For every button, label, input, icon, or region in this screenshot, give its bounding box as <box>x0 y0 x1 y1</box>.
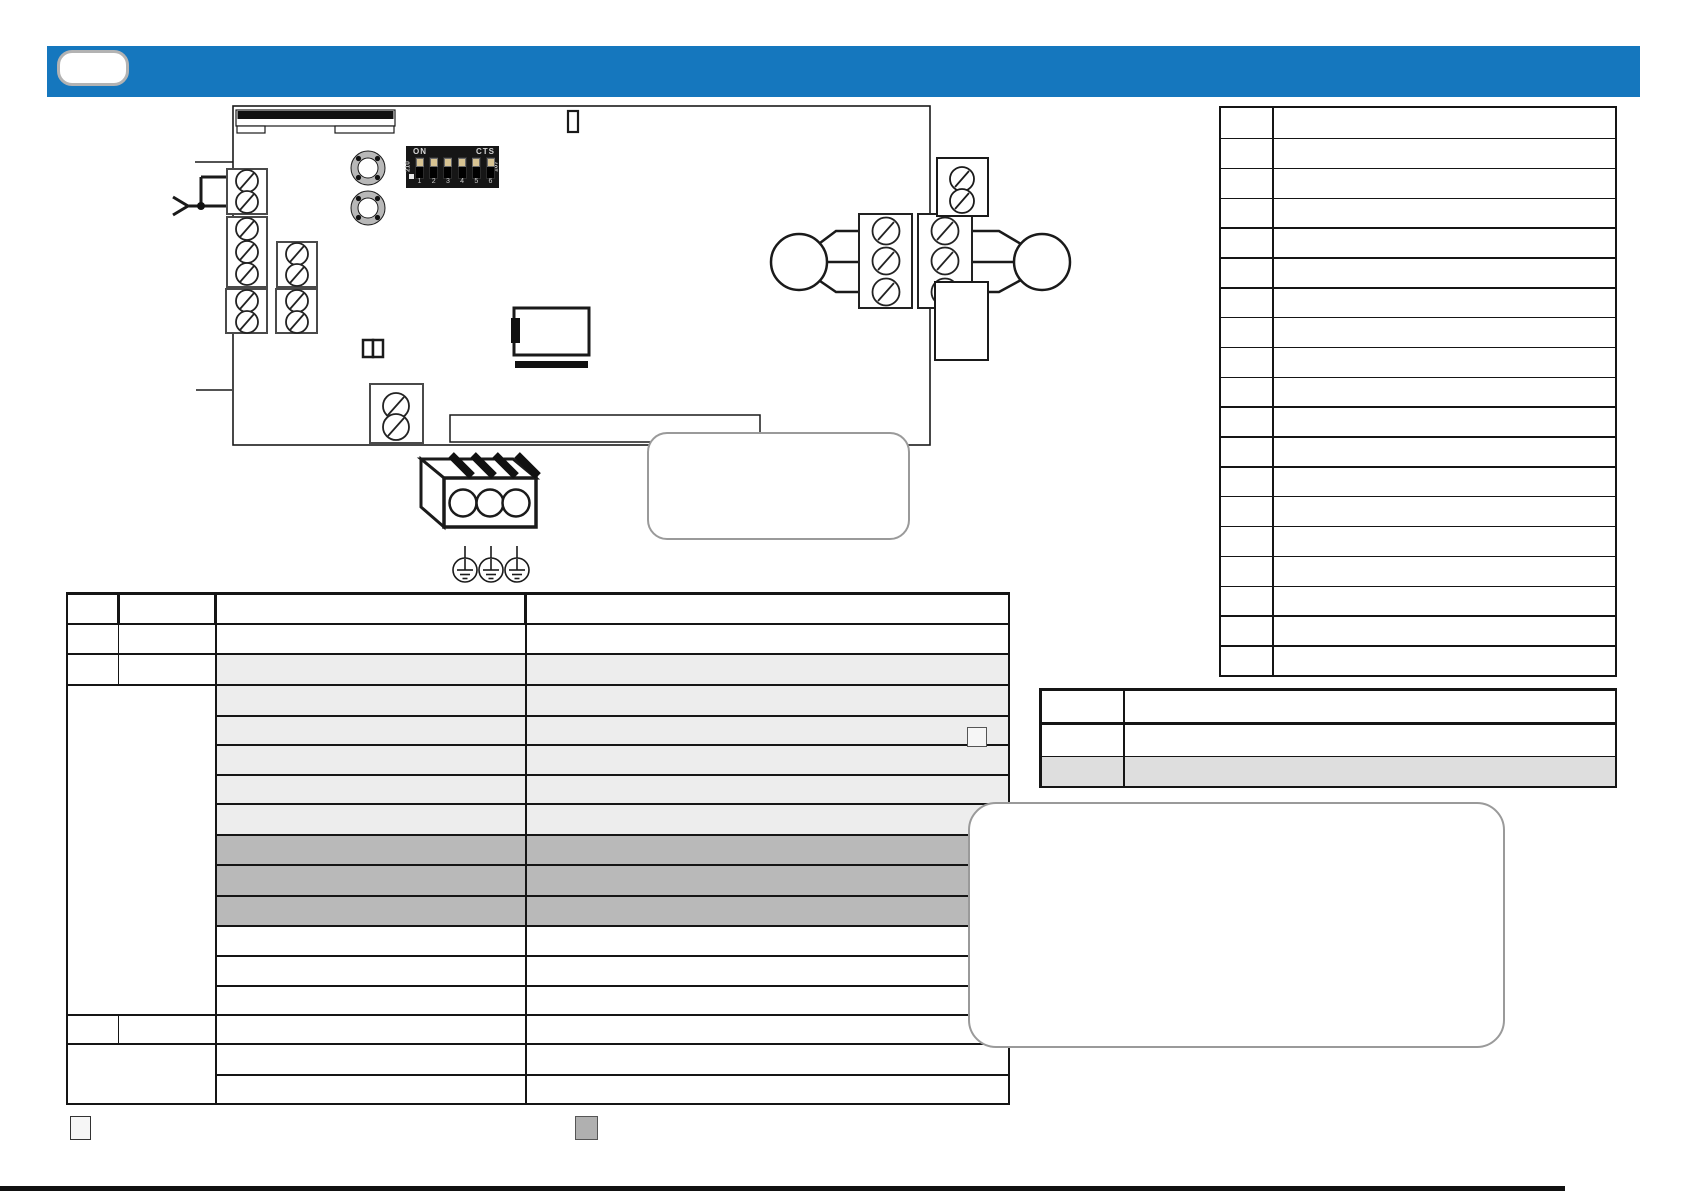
relay-icon <box>511 308 589 368</box>
earth-ground-icon <box>453 546 529 582</box>
dip-switch-toggle <box>472 157 481 179</box>
dip-switch-toggle <box>443 157 452 179</box>
mains-connector-icon <box>421 455 538 527</box>
legend-dark-swatch <box>575 1116 598 1140</box>
dip-switch-toggle <box>429 157 438 179</box>
table-row-line <box>1221 436 1615 438</box>
dip-actuator <box>487 158 495 167</box>
dip-position-number: 1 <box>415 178 424 185</box>
dip-cts-label: CTS <box>476 147 495 156</box>
dip-switch-toggle <box>458 157 467 179</box>
dip-actuator <box>416 158 424 167</box>
dip-actuator <box>472 158 480 167</box>
table-row-line <box>1221 496 1615 498</box>
main-wiring-table <box>66 592 1010 1105</box>
dip-position-number: 2 <box>429 178 438 185</box>
bottom-right-table <box>1039 688 1617 788</box>
table-row-line <box>1221 287 1615 289</box>
screw-terminal-block <box>937 158 988 216</box>
table-row-line <box>1221 168 1615 170</box>
dark-gray-rows <box>215 834 1010 925</box>
table-row-line <box>1221 406 1615 408</box>
table-row-line <box>1221 257 1615 259</box>
note-box-large <box>968 802 1505 1048</box>
dip-actuator <box>430 158 438 167</box>
barcode-label-icon <box>236 110 395 133</box>
footer-rule <box>0 1186 1565 1191</box>
table-row-line <box>1221 526 1615 528</box>
earth-wire <box>173 177 227 215</box>
dip-position-number: 5 <box>472 178 481 185</box>
table-row-line <box>1221 198 1615 200</box>
grommet-icon <box>351 151 385 185</box>
dip-switch-toggle <box>486 157 495 179</box>
table-row-line <box>1221 615 1615 617</box>
note-reference-swatch <box>967 727 987 747</box>
gray-row <box>1042 757 1615 786</box>
module-icon <box>935 282 988 360</box>
table-row-line <box>1221 347 1615 349</box>
dip-on-label: ON <box>413 147 427 156</box>
dip-position-number: 6 <box>486 178 495 185</box>
table-row-line <box>1221 586 1615 588</box>
jumper-icon <box>363 340 383 357</box>
table-row-line <box>1221 227 1615 229</box>
dip-switch: ON CTS 210 107 123456 <box>406 146 499 188</box>
manual-page: ON CTS 210 107 123456 <box>0 0 1685 1192</box>
legend-light-swatch <box>70 1116 91 1140</box>
table-row-line <box>1221 317 1615 319</box>
dip-switch-toggle <box>415 157 424 179</box>
grommet-icon <box>351 191 385 225</box>
component-icon <box>568 111 578 132</box>
dip-position-number: 3 <box>443 178 452 185</box>
component-table <box>1219 106 1617 677</box>
dip-actuator <box>458 158 466 167</box>
note-box <box>647 432 910 540</box>
table-row-line <box>1221 556 1615 558</box>
dip-marker <box>409 174 414 179</box>
table-row-line <box>1221 466 1615 468</box>
dip-position-number: 4 <box>458 178 467 185</box>
component-table-body <box>1221 108 1615 675</box>
table-row-line <box>1221 645 1615 647</box>
table-row-line <box>1221 377 1615 379</box>
dip-actuator <box>444 158 452 167</box>
table-row-line <box>1221 138 1615 140</box>
